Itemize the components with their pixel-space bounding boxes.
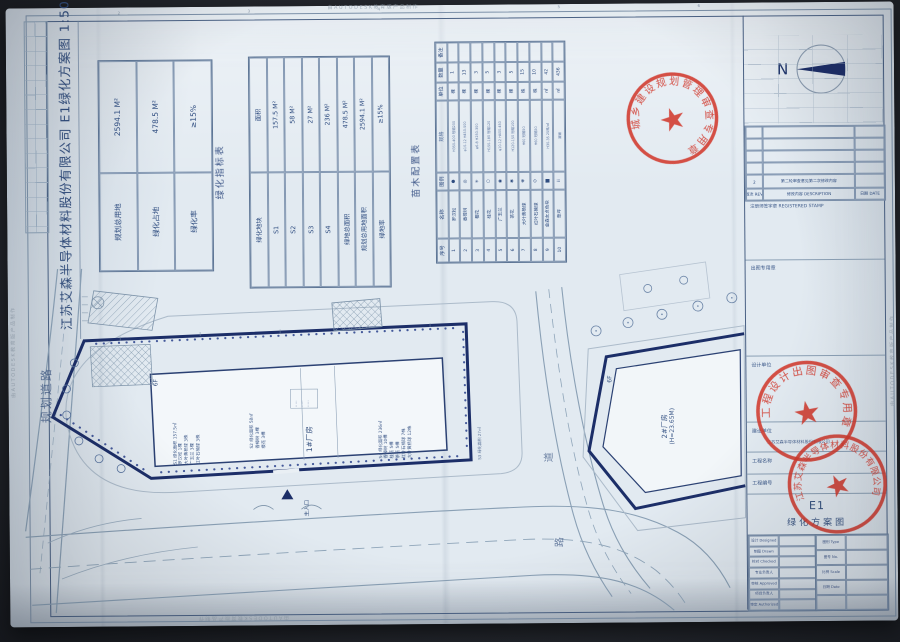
table-cell: 绿化率: [175, 172, 213, 270]
table-cell: [447, 42, 459, 62]
svg-text:★: ★: [819, 464, 857, 506]
table-cell: [855, 162, 885, 174]
table-cell: 桂花: [483, 190, 495, 238]
table-cell: 27 M²: [301, 57, 319, 172]
table-cell: 校对 Checked: [749, 557, 779, 568]
table-cell: 制图 Drawn: [749, 546, 779, 557]
table-cell: 修改内容 DESCRIPTION: [763, 188, 855, 201]
table-cell: ◎: [460, 172, 472, 190]
table-cell: 绿化地块: [250, 172, 268, 287]
table-cell: 名称: [436, 191, 448, 239]
table-cell: 广玉兰: [495, 190, 507, 238]
table-cell: [459, 42, 471, 62]
signature-grid-left: 设计 Designed制图 Drawn校对 Checked专业负责人审核 App…: [748, 534, 818, 612]
zone-number: 3: [248, 9, 251, 14]
table-cell: ㎡: [541, 82, 553, 100]
table-cell: 7: [519, 238, 531, 262]
table-cell: ⊙: [530, 172, 542, 190]
table-cell: [779, 589, 816, 600]
table-cell: 图例: [436, 173, 448, 191]
table-cell: φ6-8 H250-300: [471, 100, 483, 172]
building1-label: 1#厂房: [304, 422, 314, 456]
table-cell: 绿化占地: [137, 173, 175, 271]
table-cell: ⠿: [554, 172, 566, 190]
indicator-table-caption: 绿化指标表: [212, 122, 227, 222]
table-cell: [529, 42, 541, 62]
revision-table: 2第二轮审查意见第二次修改内容版次 REV.修改内容 DESCRIPTION日期…: [744, 125, 886, 202]
table-cell: [846, 580, 888, 595]
table-cell: 绿地率: [372, 171, 390, 286]
building2-floors: 6F: [606, 369, 614, 383]
main-entrance-label: 主入口: [302, 495, 310, 521]
table-cell: ✱: [507, 172, 519, 190]
table-cell: H60 冠幅50: [518, 100, 530, 172]
table-cell: 第二轮审查意见第二次修改内容: [763, 174, 855, 189]
green-indicator-table: 规划总用地2594.1 M²绿化占地478.5 M²绿化率≥15%: [97, 59, 214, 272]
table-cell: 8: [531, 238, 543, 262]
table-cell: 版次 REV.: [746, 189, 763, 201]
annotation-line: 大叶黄杨球 12株: [407, 358, 414, 458]
table-cell: [855, 174, 885, 188]
drawing-seal-label: 出图专用章: [751, 264, 776, 271]
table-cell: [846, 550, 888, 565]
s2-annotation-block: S2 绿化面积 58㎡香樟树 3棵樱花 3棵: [249, 378, 268, 448]
table-cell: S3: [302, 172, 320, 287]
table-cell: 茶花: [507, 190, 519, 238]
table-cell: 红叶石楠球: [530, 190, 542, 238]
table-cell: φ10-12 H400-450: [494, 100, 506, 172]
table-cell: 项目负责人: [749, 589, 779, 600]
table-cell: [846, 595, 888, 610]
table-cell: [746, 139, 763, 151]
table-cell: 草坪: [554, 190, 566, 238]
table-cell: 单位: [436, 83, 448, 101]
s3-annotation: S3 绿化面积 27㎡: [477, 400, 485, 460]
zone-number: 6: [698, 3, 701, 8]
road-label-char2: 路: [551, 533, 563, 547]
plants-schedule-table: 序号名称图例规格单位数量备注1罗汉松●H350-400 冠幅200棵12香樟树◎…: [434, 41, 567, 264]
table-cell: [517, 42, 529, 62]
table-cell: 1: [449, 238, 461, 262]
table-cell: 3: [494, 62, 506, 82]
table-cell: ❋: [518, 172, 530, 190]
table-cell: 樱花: [472, 190, 484, 238]
table-cell: 棵: [459, 82, 471, 100]
table-cell: 1: [447, 62, 459, 82]
table-cell: [762, 126, 854, 139]
table-cell: 5: [506, 62, 518, 82]
table-cell: 10: [529, 62, 541, 82]
margin-revision-grid: [24, 21, 50, 233]
table-cell: [494, 42, 506, 62]
photo-of-drawing: 2 3 4 5 6 由AUTODESK教育版产品制作 由AUTODESK教育版产…: [0, 0, 900, 642]
sheet-tilt-wrapper: 2 3 4 5 6 由AUTODESK教育版产品制作 由AUTODESK教育版产…: [0, 0, 900, 642]
building2-height: (H=23.65M): [669, 396, 677, 456]
table-cell: 棵: [471, 82, 483, 100]
zone-number: 5: [558, 4, 561, 9]
table-cell: [763, 162, 855, 175]
table-cell: 专业负责人: [749, 568, 779, 579]
table-cell: 棵: [483, 82, 495, 100]
table-cell: 金森女贞色块: [542, 190, 554, 238]
autodesk-watermark-top: 由AUTODESK教育版产品制作: [328, 3, 420, 11]
table-cell: 规格: [436, 101, 448, 173]
table-cell: 9: [542, 238, 554, 262]
zone-number: 2: [118, 11, 121, 16]
table-cell: 序号: [437, 239, 449, 263]
table-cell: 棵: [447, 82, 459, 100]
table-cell: [779, 567, 816, 578]
table-cell: [506, 42, 518, 62]
table-cell: [553, 42, 565, 62]
table-cell: 日期 DATE: [855, 188, 885, 200]
table-cell: [854, 126, 884, 138]
table-cell: 15: [518, 62, 530, 82]
table-cell: 审定 Authorized: [749, 600, 779, 611]
table-cell: [816, 595, 846, 610]
table-cell: S2: [285, 172, 303, 287]
table-cell: 设计 Designed: [749, 535, 779, 546]
table-cell: 规划总用地面积: [355, 172, 373, 287]
table-cell: [746, 151, 763, 163]
table-cell: 绿地总面积: [337, 172, 355, 287]
table-cell: S1: [267, 172, 285, 287]
table-cell: 图号 No.: [816, 550, 846, 565]
table-cell: 10: [554, 238, 566, 262]
table-cell: H60 冠幅50: [530, 100, 542, 172]
table-cell: 3: [472, 238, 484, 262]
road-label-char1: 道: [540, 448, 552, 462]
table-cell: 备注: [435, 43, 447, 63]
table-cell: 规划总用地: [99, 173, 137, 271]
table-cell: 478.5 M²: [336, 57, 354, 172]
table-cell: 478.5 M²: [136, 61, 175, 173]
table-cell: H120-150 冠幅100: [506, 100, 518, 172]
table-cell: [763, 138, 855, 151]
table-cell: ○: [483, 172, 495, 190]
table-cell: [482, 42, 494, 62]
table-cell: [745, 127, 762, 139]
table-cell: 日期 Date: [816, 580, 846, 595]
table-cell: 13: [459, 62, 471, 82]
table-cell: 数量: [435, 63, 447, 83]
table-cell: [779, 599, 816, 610]
autodesk-watermark-bottom: 由AUTODESK教育版产品制作: [197, 614, 289, 622]
autodesk-watermark-left: 由AUTODESK教育版产品制作: [9, 248, 17, 398]
titleblock-top-grid: [744, 35, 884, 124]
svg-text:★: ★: [790, 393, 825, 435]
table-cell: [746, 163, 763, 175]
table-cell: 审核 Approved: [749, 578, 779, 589]
s4-annotation-block: S4 绿化面积 236㎡香樟树 10棵桂花 5棵茶花 5棵红叶石楠球 7株大叶黄…: [377, 358, 414, 458]
table-cell: ◉: [495, 172, 507, 190]
table-cell: [855, 150, 885, 162]
table-cell: 株: [518, 82, 530, 100]
table-cell: 157.5 M²: [266, 57, 284, 172]
table-cell: ≥15%: [371, 56, 389, 171]
table-cell: 42: [541, 62, 553, 82]
plants-table-caption: 苗木配置表: [408, 125, 423, 215]
table-cell: 罗汉松: [448, 190, 460, 238]
table-cell: 面积: [249, 57, 267, 172]
table-cell: 236 M²: [319, 57, 337, 172]
table-cell: [779, 578, 816, 589]
table-cell: [763, 150, 855, 163]
building2-label: 2#厂房 (H=23.65M): [660, 396, 678, 456]
table-cell: [846, 565, 888, 580]
divider: [746, 259, 885, 261]
room-annotation-block: ···············: [293, 389, 315, 407]
table-cell: ✳: [472, 172, 484, 190]
table-cell: ●: [448, 172, 460, 190]
table-cell: 58 M²: [284, 57, 302, 172]
registered-stamp-label: 注册师签字章 REGISTERED STAMP: [750, 203, 824, 210]
table-cell: H30-35 25株/㎡: [541, 100, 553, 172]
table-cell: [855, 138, 885, 150]
table-cell: 2: [460, 238, 472, 262]
table-cell: 株: [529, 82, 541, 100]
table-cell: φ10-12 H450-500: [459, 100, 471, 172]
table-cell: H150-180 冠幅120: [483, 100, 495, 172]
table-cell: 香樟树: [460, 190, 472, 238]
sheet-vertical-title: 江苏艾森半导体材料股份有限公司 E1绿化方案图 1:500: [54, 20, 76, 330]
table-cell: 3: [471, 62, 483, 82]
table-cell: 满铺: [553, 100, 565, 172]
table-cell: [846, 535, 888, 550]
table-cell: ≥15%: [174, 60, 213, 172]
green-plots-table: 绿化地块面积S1157.5 M²S258 M²S327 M²S4236 M²绿地…: [248, 55, 392, 288]
svg-text:★: ★: [654, 98, 692, 141]
table-cell: 2: [746, 175, 763, 189]
project-no-label: 工程编号: [752, 479, 772, 486]
table-cell: 4: [484, 238, 496, 262]
annotation-line: 红叶石楠球 3株: [196, 369, 203, 464]
table-cell: [541, 42, 553, 62]
table-cell: ㎡: [553, 82, 565, 100]
autodesk-watermark-right: 由AUTODESK教育版产品制作: [888, 246, 896, 406]
table-cell: 大叶黄杨球: [519, 190, 531, 238]
table-cell: 5: [482, 62, 494, 82]
s1-annotation-block: S1 绿化面积 157.5㎡罗汉松 1棵大叶黄杨球 3株广玉兰 3棵红叶石楠球 …: [172, 369, 203, 464]
table-cell: 棵: [506, 82, 518, 100]
table-cell: 5: [495, 238, 507, 262]
table-cell: [779, 557, 816, 568]
table-cell: 2594.1 M²: [354, 57, 372, 172]
table-cell: H350-400 冠幅200: [447, 100, 459, 172]
table-cell: 436: [553, 62, 565, 82]
table-cell: 6: [507, 238, 519, 262]
road-label-left: 规划道路: [37, 355, 54, 435]
table-cell: [470, 42, 482, 62]
table-cell: S4: [320, 172, 338, 287]
table-cell: ▆: [542, 172, 554, 190]
annotation-line: ·····: [306, 389, 312, 407]
table-cell: 比例 Scale: [816, 565, 846, 580]
annotation-line: 樱花 3棵: [261, 378, 267, 448]
table-cell: 棵: [494, 82, 506, 100]
table-cell: 2594.1 M²: [98, 61, 137, 173]
building1-floors: 6F: [152, 372, 160, 386]
